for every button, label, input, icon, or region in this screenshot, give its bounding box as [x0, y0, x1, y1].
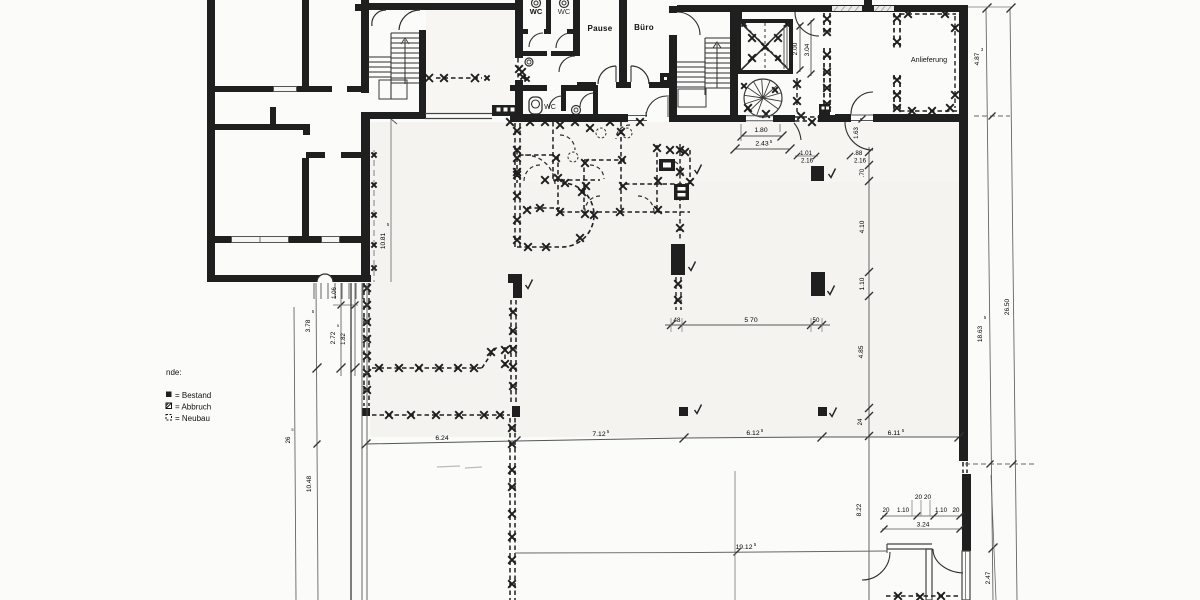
svg-text:Büro: Büro	[634, 23, 654, 32]
svg-text:10.81: 10.81	[380, 232, 387, 249]
svg-text:8.22: 8.22	[856, 503, 863, 516]
svg-text:26.50: 26.50	[1004, 298, 1011, 315]
svg-text:Anlieferung: Anlieferung	[911, 55, 947, 64]
svg-text:3.04: 3.04	[804, 43, 811, 56]
svg-text:7.12: 7.12	[592, 431, 605, 438]
svg-text:.70: .70	[860, 168, 866, 177]
svg-text:= Neubau: = Neubau	[175, 414, 210, 423]
svg-text:6.12: 6.12	[746, 430, 759, 437]
svg-text:1.80: 1.80	[754, 127, 767, 134]
svg-text:1.63: 1.63	[854, 127, 860, 139]
svg-text:2.00: 2.00	[792, 42, 799, 55]
svg-text:48: 48	[674, 317, 681, 324]
svg-text:4.85: 4.85	[858, 345, 865, 358]
svg-text:3.24: 3.24	[917, 522, 930, 529]
svg-text:WC: WC	[558, 7, 571, 16]
svg-text:Pause: Pause	[587, 24, 612, 33]
svg-text:20 20: 20 20	[915, 494, 932, 501]
svg-text:19.12: 19.12	[735, 544, 752, 551]
svg-text:nde:: nde:	[166, 368, 182, 377]
svg-text:10.48: 10.48	[306, 475, 313, 492]
svg-text:1.10: 1.10	[859, 277, 866, 290]
svg-text:5 70: 5 70	[744, 317, 757, 324]
svg-text:4.87: 4.87	[974, 52, 981, 65]
svg-text:3.78: 3.78	[305, 319, 312, 332]
svg-text:WC: WC	[530, 7, 543, 16]
svg-text:1.10: 1.10	[897, 507, 910, 514]
svg-text:6.11: 6.11	[888, 430, 901, 437]
svg-text:1.82: 1.82	[341, 333, 347, 345]
svg-text:.88: .88	[854, 150, 863, 157]
svg-text:2.47: 2.47	[985, 571, 992, 584]
svg-text:2.43: 2.43	[755, 141, 768, 148]
svg-text:2.72: 2.72	[330, 331, 337, 344]
svg-text:50: 50	[813, 317, 820, 324]
svg-text:24: 24	[858, 418, 864, 425]
svg-text:= Bestand: = Bestand	[175, 391, 211, 400]
svg-text:6.24: 6.24	[435, 435, 448, 442]
svg-text:20: 20	[953, 507, 960, 514]
svg-text:4.10: 4.10	[859, 220, 866, 233]
svg-text:26: 26	[286, 436, 292, 443]
svg-text:2.16: 2.16	[854, 158, 867, 165]
svg-text:18.63: 18.63	[977, 325, 984, 342]
svg-text:= Abbruch: = Abbruch	[175, 403, 211, 412]
svg-text:2.16: 2.16	[801, 158, 814, 165]
